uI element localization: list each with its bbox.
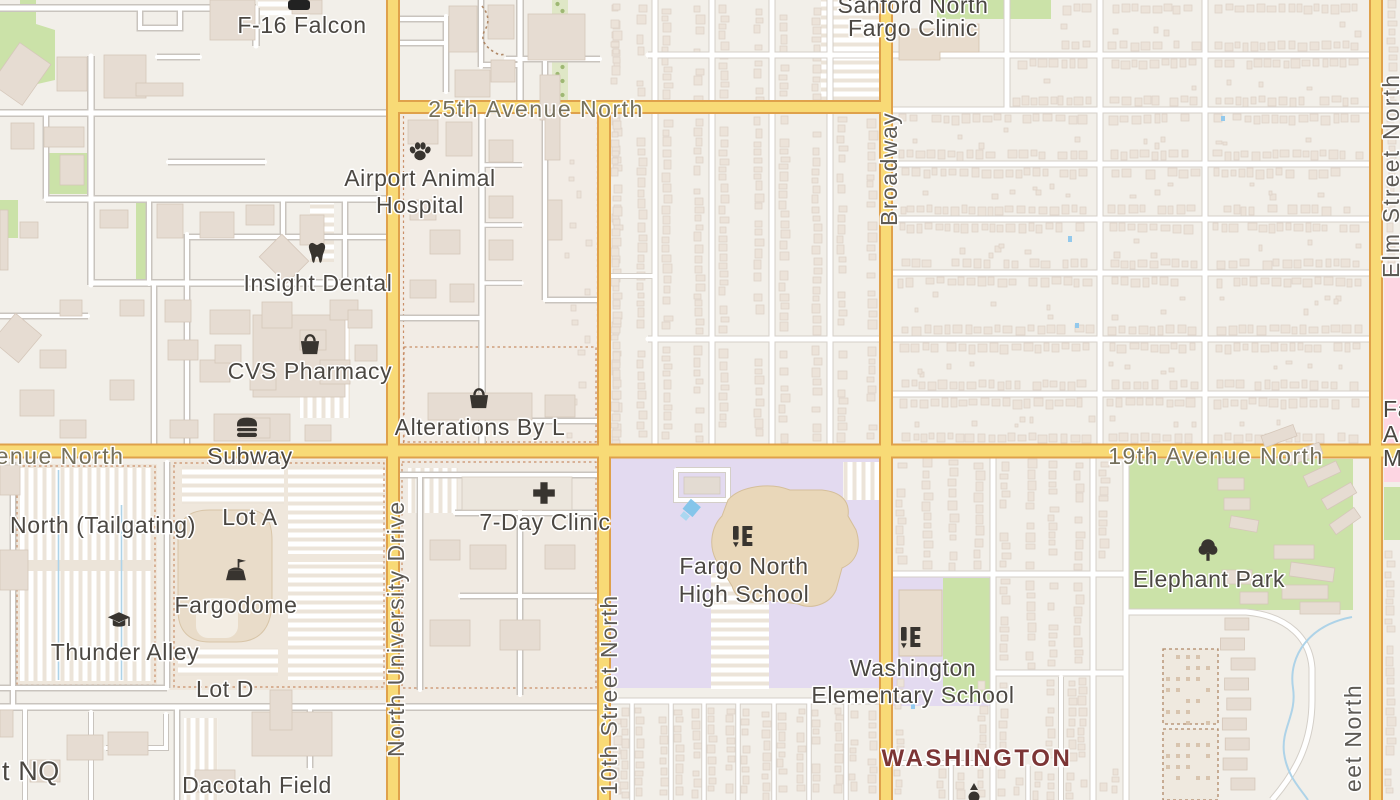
- svg-text:Lot A: Lot A: [222, 504, 277, 530]
- svg-text:Ad: Ad: [1383, 421, 1400, 447]
- svg-text:19th Avenue North: 19th Avenue North: [1108, 443, 1324, 469]
- svg-text:North University Drive: North University Drive: [383, 500, 409, 757]
- svg-text:Elm Street North: Elm Street North: [1378, 73, 1400, 278]
- svg-text:Dacotah Field: Dacotah Field: [182, 772, 332, 798]
- svg-text:Lot D: Lot D: [196, 676, 254, 702]
- svg-text:M: M: [1383, 445, 1400, 471]
- svg-text:Washington: Washington: [850, 655, 977, 681]
- svg-text:Fa: Fa: [1383, 396, 1400, 422]
- svg-text:F-16 Falcon: F-16 Falcon: [237, 12, 366, 38]
- svg-text:10th Street North: 10th Street North: [596, 594, 622, 795]
- svg-text:Thunder Alley: Thunder Alley: [51, 639, 199, 665]
- svg-text:CVS Pharmacy: CVS Pharmacy: [228, 358, 392, 384]
- svg-text:Fargo Clinic: Fargo Clinic: [848, 15, 978, 41]
- svg-text:t NQ: t NQ: [2, 756, 60, 786]
- svg-text:eet North: eet North: [1340, 684, 1366, 792]
- svg-text:Hospital: Hospital: [376, 192, 464, 218]
- svg-text:25th Avenue North: 25th Avenue North: [428, 96, 644, 122]
- svg-text:Elephant Park: Elephant Park: [1133, 566, 1285, 592]
- svg-text:7-Day Clinic: 7-Day Clinic: [479, 509, 610, 535]
- svg-text:Fargodome: Fargodome: [174, 592, 297, 618]
- svg-text:Broadway: Broadway: [876, 112, 902, 226]
- svg-text:Elementary School: Elementary School: [811, 682, 1014, 708]
- svg-text:Airport Animal: Airport Animal: [344, 165, 496, 191]
- svg-text:Insight Dental: Insight Dental: [243, 270, 392, 296]
- svg-text:Fargo North: Fargo North: [679, 553, 808, 579]
- svg-text:High School: High School: [679, 581, 810, 607]
- svg-text:WASHINGTON: WASHINGTON: [882, 745, 1073, 772]
- svg-text:North (Tailgating): North (Tailgating): [10, 512, 196, 538]
- svg-text:enue North: enue North: [0, 443, 124, 469]
- svg-text:Alterations By L: Alterations By L: [395, 414, 566, 440]
- svg-text:Subway: Subway: [207, 443, 292, 469]
